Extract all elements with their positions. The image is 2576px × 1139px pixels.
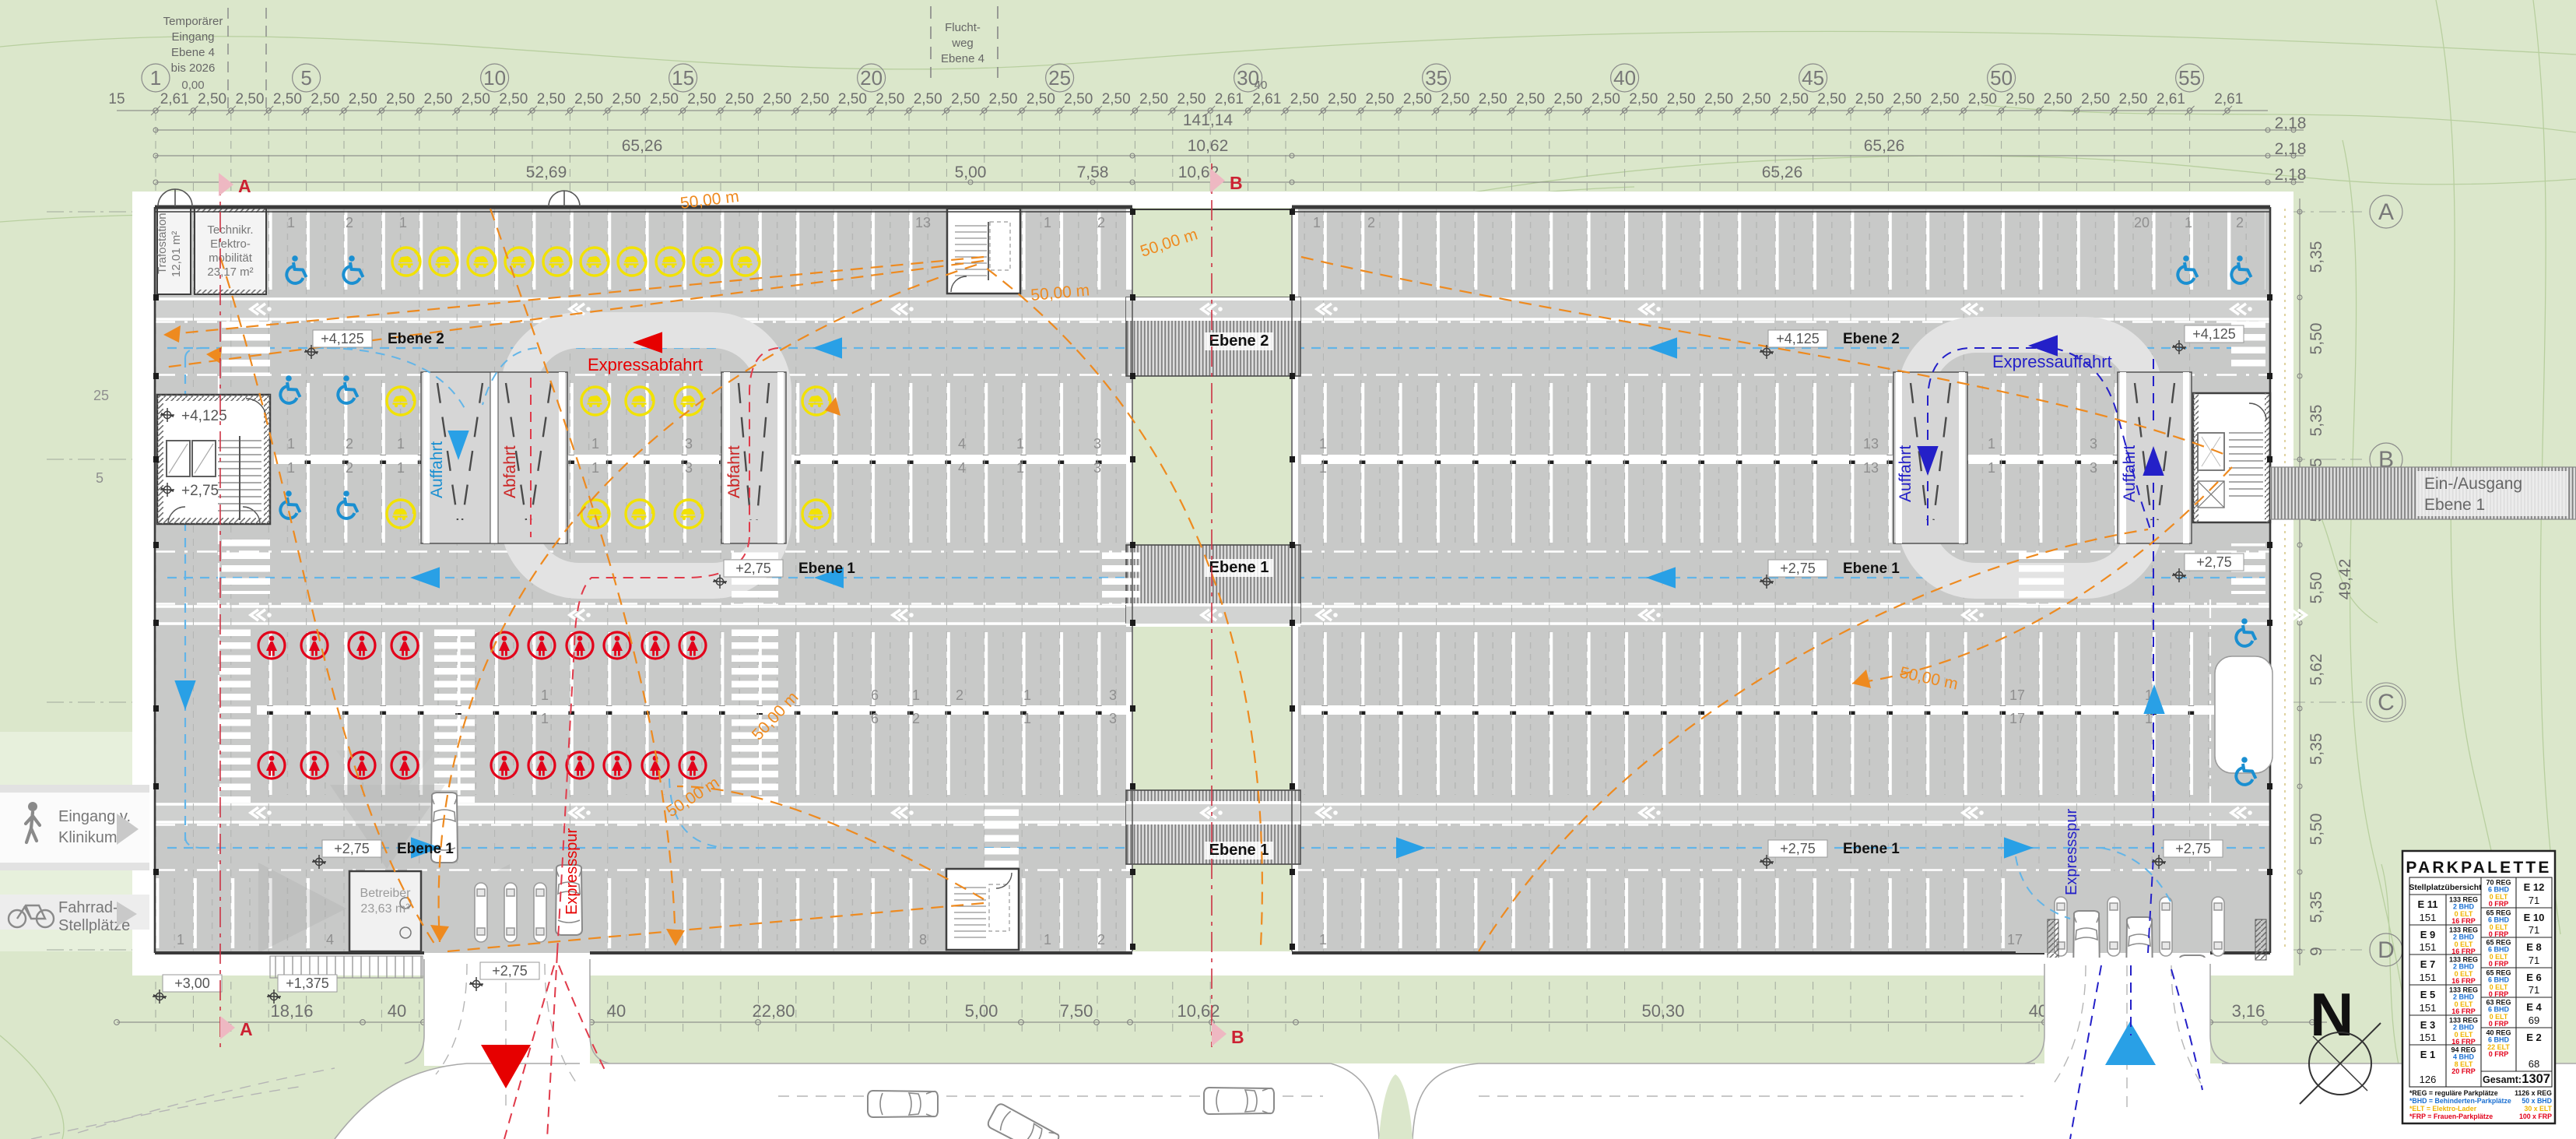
svg-text:bis 2026: bis 2026 bbox=[171, 62, 216, 75]
svg-text:2,61: 2,61 bbox=[2214, 91, 2243, 107]
svg-text:65,26: 65,26 bbox=[1864, 137, 1905, 155]
svg-text:+2,75: +2,75 bbox=[492, 963, 528, 979]
svg-text:17: 17 bbox=[2007, 932, 2023, 947]
svg-text:Ebene 1: Ebene 1 bbox=[1843, 561, 1900, 577]
svg-text:2,50: 2,50 bbox=[725, 91, 754, 107]
svg-text:mobilität: mobilität bbox=[209, 251, 253, 265]
svg-text:5,35: 5,35 bbox=[2308, 733, 2325, 765]
svg-text:+2,75: +2,75 bbox=[1780, 841, 1816, 856]
svg-text:2,18: 2,18 bbox=[2275, 166, 2307, 184]
svg-text:3: 3 bbox=[1109, 687, 1117, 703]
svg-text:20: 20 bbox=[860, 66, 883, 90]
svg-text:1: 1 bbox=[541, 711, 549, 726]
svg-text:Elektro-: Elektro- bbox=[210, 237, 251, 251]
svg-text:D: D bbox=[2378, 937, 2395, 963]
svg-text:2,61: 2,61 bbox=[2157, 91, 2185, 107]
svg-text:2,50: 2,50 bbox=[1855, 91, 1884, 107]
svg-text:2,50: 2,50 bbox=[1064, 91, 1093, 107]
svg-text:45: 45 bbox=[1802, 66, 1824, 90]
svg-text:2,50: 2,50 bbox=[1479, 91, 1507, 107]
svg-text:B: B bbox=[1231, 1027, 1244, 1047]
svg-text:151: 151 bbox=[2420, 941, 2437, 953]
svg-text:2,50: 2,50 bbox=[838, 91, 867, 107]
svg-text:3: 3 bbox=[2090, 436, 2097, 452]
svg-text:+2,75: +2,75 bbox=[1780, 561, 1816, 576]
svg-text:2,50: 2,50 bbox=[1667, 91, 1696, 107]
svg-text:4: 4 bbox=[958, 460, 966, 476]
svg-text:2,50: 2,50 bbox=[386, 91, 415, 107]
svg-text:*BHD = Behinderten-Parkplätze: *BHD = Behinderten-Parkplätze bbox=[2409, 1097, 2511, 1105]
svg-text:Ebene 2: Ebene 2 bbox=[1209, 332, 1269, 350]
svg-text:71: 71 bbox=[2529, 954, 2539, 966]
svg-text:2: 2 bbox=[1367, 215, 1375, 230]
svg-text:5: 5 bbox=[96, 470, 104, 486]
svg-text:71: 71 bbox=[2529, 895, 2539, 906]
svg-text:2,50: 2,50 bbox=[424, 91, 453, 107]
svg-text:Ebene 2: Ebene 2 bbox=[1843, 331, 1900, 347]
svg-text:+3,00: +3,00 bbox=[174, 976, 210, 991]
svg-text:E 1: E 1 bbox=[2420, 1049, 2436, 1060]
svg-text:1: 1 bbox=[1016, 460, 1024, 476]
svg-text:Ebene 2: Ebene 2 bbox=[388, 331, 444, 347]
svg-text:5,35: 5,35 bbox=[2308, 241, 2325, 273]
svg-text:2,50: 2,50 bbox=[1817, 91, 1846, 107]
svg-text:2,50: 2,50 bbox=[1328, 91, 1356, 107]
svg-text:Ein-/Ausgang: Ein-/Ausgang bbox=[2424, 475, 2522, 493]
svg-text:1: 1 bbox=[2185, 215, 2192, 230]
svg-text:2,50: 2,50 bbox=[198, 91, 226, 107]
svg-text:+4,125: +4,125 bbox=[1776, 331, 1820, 346]
svg-text:2,61: 2,61 bbox=[160, 91, 189, 107]
svg-text:2: 2 bbox=[1097, 932, 1105, 947]
svg-text:*FRP = Frauen-Parkplätze: *FRP = Frauen-Parkplätze bbox=[2409, 1113, 2493, 1120]
svg-text:Expressspur: Expressspur bbox=[563, 828, 581, 915]
svg-text:7,50: 7,50 bbox=[1060, 1001, 1093, 1021]
svg-text:*ELT = Elektro-Lader: *ELT = Elektro-Lader bbox=[2409, 1105, 2477, 1113]
svg-text:Ebene 1: Ebene 1 bbox=[2424, 496, 2485, 514]
svg-text:2,50: 2,50 bbox=[1893, 91, 1921, 107]
svg-text:1: 1 bbox=[1319, 436, 1327, 452]
svg-text:2: 2 bbox=[346, 215, 353, 230]
svg-text:Trafostation: Trafostation bbox=[156, 213, 169, 274]
svg-text:weg: weg bbox=[951, 37, 974, 50]
svg-text:16 FRP: 16 FRP bbox=[2451, 917, 2476, 925]
svg-text:5,00: 5,00 bbox=[955, 163, 987, 181]
svg-text:40: 40 bbox=[607, 1001, 626, 1021]
svg-text:+4,125: +4,125 bbox=[2192, 326, 2236, 342]
svg-text:1: 1 bbox=[1988, 436, 1995, 452]
svg-text:2: 2 bbox=[956, 687, 963, 703]
svg-text:Temporärer: Temporärer bbox=[163, 15, 223, 28]
svg-text:23,17 m²: 23,17 m² bbox=[207, 265, 253, 279]
svg-text:Ebene 1: Ebene 1 bbox=[1843, 841, 1900, 857]
svg-text:10,62: 10,62 bbox=[1188, 137, 1229, 155]
svg-text:1: 1 bbox=[1319, 932, 1327, 947]
svg-text:A: A bbox=[2378, 199, 2394, 225]
svg-text:2,50: 2,50 bbox=[801, 91, 830, 107]
svg-text:3: 3 bbox=[2090, 460, 2097, 476]
svg-text:Auffahrt: Auffahrt bbox=[428, 441, 446, 498]
svg-text:1: 1 bbox=[591, 460, 599, 476]
svg-text:1: 1 bbox=[1313, 215, 1321, 230]
svg-text:0 FRP: 0 FRP bbox=[2489, 900, 2509, 908]
svg-text:+2,75: +2,75 bbox=[181, 483, 219, 499]
svg-text:1126 x REG: 1126 x REG bbox=[2515, 1089, 2552, 1097]
svg-text:5,62: 5,62 bbox=[2308, 654, 2325, 686]
svg-text:69: 69 bbox=[2529, 1014, 2539, 1026]
svg-text:8: 8 bbox=[919, 932, 927, 947]
svg-text:2: 2 bbox=[346, 436, 353, 452]
svg-text:5,50: 5,50 bbox=[2308, 323, 2325, 355]
svg-text:141,14: 141,14 bbox=[1183, 111, 1234, 129]
svg-text:E 5: E 5 bbox=[2420, 989, 2436, 1000]
svg-text:5,50: 5,50 bbox=[2308, 814, 2325, 845]
svg-text:1: 1 bbox=[1044, 215, 1051, 230]
svg-text:E 9: E 9 bbox=[2420, 929, 2436, 940]
svg-text:1: 1 bbox=[397, 436, 405, 452]
svg-text:Eingang: Eingang bbox=[171, 30, 214, 44]
svg-text:1: 1 bbox=[150, 66, 161, 90]
svg-text:2,50: 2,50 bbox=[537, 91, 566, 107]
svg-text:6: 6 bbox=[871, 687, 879, 703]
svg-text:0 FRP: 0 FRP bbox=[2489, 990, 2509, 998]
svg-text:1: 1 bbox=[287, 436, 295, 452]
svg-text:15: 15 bbox=[108, 91, 125, 107]
svg-text:35: 35 bbox=[1425, 66, 1448, 90]
svg-text:10,62: 10,62 bbox=[1177, 1001, 1220, 1021]
svg-text:2,50: 2,50 bbox=[2119, 91, 2148, 107]
svg-text:E 8: E 8 bbox=[2526, 941, 2542, 953]
svg-text:2,50: 2,50 bbox=[650, 91, 679, 107]
svg-text:1: 1 bbox=[397, 460, 405, 476]
svg-text:+4,125: +4,125 bbox=[321, 331, 364, 346]
svg-text:25: 25 bbox=[93, 388, 109, 403]
svg-text:2,50: 2,50 bbox=[2081, 91, 2110, 107]
svg-text:Technikr.: Technikr. bbox=[207, 223, 253, 237]
svg-text:E 6: E 6 bbox=[2526, 972, 2542, 983]
svg-text:50 x BHD: 50 x BHD bbox=[2522, 1097, 2552, 1105]
svg-text:151: 151 bbox=[2420, 972, 2437, 983]
svg-text:Ebene 1: Ebene 1 bbox=[1209, 559, 1269, 576]
svg-text:E 3: E 3 bbox=[2420, 1019, 2436, 1031]
svg-text:2,61: 2,61 bbox=[1215, 91, 1244, 107]
svg-text:Stellplatzübersicht: Stellplatzübersicht bbox=[2409, 883, 2482, 892]
svg-text:2,50: 2,50 bbox=[1290, 91, 1319, 107]
svg-text:5,00: 5,00 bbox=[965, 1001, 998, 1021]
svg-text:151: 151 bbox=[2420, 1002, 2437, 1014]
svg-text:2: 2 bbox=[912, 711, 920, 726]
svg-text:25: 25 bbox=[1048, 66, 1071, 90]
svg-text:2,50: 2,50 bbox=[1441, 91, 1469, 107]
svg-text:Expressabfahrt: Expressabfahrt bbox=[588, 355, 703, 374]
svg-text:13: 13 bbox=[1863, 460, 1879, 476]
svg-text:0 FRP: 0 FRP bbox=[2489, 960, 2509, 968]
svg-text:5,35: 5,35 bbox=[2308, 891, 2325, 923]
svg-text:20 FRP: 20 FRP bbox=[2451, 1067, 2476, 1075]
svg-text:2,50: 2,50 bbox=[1742, 91, 1771, 107]
svg-text:Abfahrt: Abfahrt bbox=[501, 445, 519, 498]
svg-text:1: 1 bbox=[287, 215, 295, 230]
svg-text:E 11: E 11 bbox=[2417, 898, 2437, 910]
svg-text:0 FRP: 0 FRP bbox=[2489, 1050, 2509, 1058]
svg-text:2: 2 bbox=[2236, 215, 2244, 230]
svg-text:1307: 1307 bbox=[2522, 1072, 2550, 1086]
svg-text:2,50: 2,50 bbox=[1968, 91, 1997, 107]
svg-text:1: 1 bbox=[591, 436, 599, 452]
svg-text:+2,75: +2,75 bbox=[334, 841, 370, 856]
svg-text:2,50: 2,50 bbox=[1554, 91, 1583, 107]
svg-text:2,50: 2,50 bbox=[349, 91, 377, 107]
svg-text:Abfahrt: Abfahrt bbox=[725, 445, 743, 498]
svg-text:4: 4 bbox=[326, 932, 334, 947]
svg-text:16 FRP: 16 FRP bbox=[2451, 1038, 2476, 1046]
svg-text:2,50: 2,50 bbox=[1177, 91, 1206, 107]
svg-text:2,18: 2,18 bbox=[2275, 114, 2307, 132]
svg-text:2,50: 2,50 bbox=[2044, 91, 2072, 107]
svg-text:2: 2 bbox=[1097, 215, 1105, 230]
svg-text:5,50: 5,50 bbox=[2308, 572, 2325, 604]
svg-text:Auffahrt: Auffahrt bbox=[1897, 445, 1914, 502]
svg-text:3: 3 bbox=[1093, 460, 1101, 476]
svg-text:55: 55 bbox=[2178, 66, 2201, 90]
svg-text:1: 1 bbox=[1044, 932, 1051, 947]
svg-text:+2,75: +2,75 bbox=[735, 561, 771, 576]
svg-text:E 4: E 4 bbox=[2526, 1001, 2542, 1013]
svg-text:15: 15 bbox=[672, 66, 694, 90]
svg-text:+1,375: +1,375 bbox=[286, 976, 329, 991]
svg-text:2,50: 2,50 bbox=[1102, 91, 1131, 107]
svg-text:1: 1 bbox=[912, 687, 920, 703]
svg-text:0,00: 0,00 bbox=[181, 79, 204, 92]
svg-text:50,30: 50,30 bbox=[1641, 1001, 1684, 1021]
svg-text:6: 6 bbox=[871, 711, 879, 726]
svg-text:126: 126 bbox=[2420, 1074, 2437, 1085]
svg-text:*REG = reguläre Parkplätze: *REG = reguläre Parkplätze bbox=[2409, 1089, 2498, 1097]
svg-text:3: 3 bbox=[1093, 436, 1101, 452]
svg-text:16 FRP: 16 FRP bbox=[2451, 1007, 2476, 1015]
svg-text:B: B bbox=[1230, 173, 1243, 193]
svg-text:A: A bbox=[240, 1019, 253, 1039]
svg-text:3: 3 bbox=[685, 460, 693, 476]
svg-text:1: 1 bbox=[287, 460, 295, 476]
svg-text:N: N bbox=[2310, 980, 2353, 1049]
svg-text:PARKPALETTE: PARKPALETTE bbox=[2406, 859, 2551, 877]
svg-text:Fahrrad-: Fahrrad- bbox=[58, 899, 118, 916]
svg-text:0 FRP: 0 FRP bbox=[2489, 1020, 2509, 1028]
svg-text:0 FRP: 0 FRP bbox=[2489, 930, 2509, 938]
svg-text:2,50: 2,50 bbox=[2006, 91, 2034, 107]
svg-text:Klinikum: Klinikum bbox=[58, 829, 118, 846]
svg-text:16 FRP: 16 FRP bbox=[2451, 947, 2476, 955]
svg-text:65,26: 65,26 bbox=[622, 137, 663, 155]
svg-text:2,50: 2,50 bbox=[1704, 91, 1733, 107]
svg-text:+2,75: +2,75 bbox=[2175, 841, 2211, 856]
svg-text:100 x FRP: 100 x FRP bbox=[2519, 1113, 2552, 1120]
svg-text:52,69: 52,69 bbox=[526, 163, 567, 181]
svg-text:17: 17 bbox=[2009, 711, 2025, 726]
svg-text:Ebene 4: Ebene 4 bbox=[941, 52, 984, 65]
svg-text:2,50: 2,50 bbox=[1139, 91, 1168, 107]
svg-text:2,61: 2,61 bbox=[1252, 91, 1281, 107]
svg-text:2,50: 2,50 bbox=[1027, 91, 1055, 107]
svg-text:2,50: 2,50 bbox=[1629, 91, 1658, 107]
svg-text:18,16: 18,16 bbox=[270, 1001, 313, 1021]
svg-text:2,50: 2,50 bbox=[612, 91, 641, 107]
svg-text:2,50: 2,50 bbox=[499, 91, 528, 107]
svg-text:71: 71 bbox=[2529, 924, 2539, 936]
svg-text:A: A bbox=[238, 176, 251, 196]
svg-text:Expressspur: Expressspur bbox=[2063, 809, 2080, 895]
svg-text:2,50: 2,50 bbox=[462, 91, 490, 107]
svg-text:20: 20 bbox=[2134, 215, 2150, 230]
svg-text:2,50: 2,50 bbox=[1516, 91, 1545, 107]
svg-text:49,42: 49,42 bbox=[2336, 559, 2354, 600]
svg-text:4: 4 bbox=[958, 436, 966, 452]
svg-text:2,50: 2,50 bbox=[876, 91, 904, 107]
svg-text:16 FRP: 16 FRP bbox=[2451, 977, 2476, 985]
svg-text:30 x ELT: 30 x ELT bbox=[2524, 1105, 2552, 1113]
svg-text:7,58: 7,58 bbox=[1077, 163, 1109, 181]
svg-text:68: 68 bbox=[2529, 1058, 2539, 1070]
svg-text:2,50: 2,50 bbox=[914, 91, 942, 107]
svg-text:Expressauffahrt: Expressauffahrt bbox=[1992, 352, 2112, 371]
svg-text:2,50: 2,50 bbox=[311, 91, 339, 107]
svg-text:65,26: 65,26 bbox=[1762, 163, 1803, 181]
svg-text:2,18: 2,18 bbox=[2275, 140, 2307, 158]
svg-text:E 2: E 2 bbox=[2526, 1032, 2542, 1043]
svg-text:1: 1 bbox=[1319, 460, 1327, 476]
svg-text:Ebene 1: Ebene 1 bbox=[397, 841, 454, 857]
svg-text:30: 30 bbox=[1237, 66, 1259, 90]
svg-text:2,50: 2,50 bbox=[989, 91, 1018, 107]
svg-text:3: 3 bbox=[1109, 711, 1117, 726]
svg-text:2,50: 2,50 bbox=[1592, 91, 1620, 107]
svg-text:1: 1 bbox=[177, 932, 184, 947]
svg-text:1: 1 bbox=[399, 215, 407, 230]
svg-text:5,35: 5,35 bbox=[2308, 405, 2325, 437]
svg-text:10: 10 bbox=[483, 66, 506, 90]
svg-text:Flucht-: Flucht- bbox=[945, 21, 981, 34]
svg-text:E 10: E 10 bbox=[2524, 912, 2545, 923]
svg-text:2: 2 bbox=[346, 460, 353, 476]
svg-text:Ebene 4: Ebene 4 bbox=[171, 46, 215, 59]
svg-text:2,50: 2,50 bbox=[1780, 91, 1809, 107]
svg-text:151: 151 bbox=[2420, 1032, 2437, 1043]
svg-text:12,01 m²: 12,01 m² bbox=[170, 231, 183, 277]
svg-text:5: 5 bbox=[300, 66, 311, 90]
svg-text:71: 71 bbox=[2529, 984, 2539, 996]
svg-text:1: 1 bbox=[1016, 436, 1024, 452]
svg-text:+2,75: +2,75 bbox=[2196, 554, 2232, 570]
svg-text:Ebene 1: Ebene 1 bbox=[798, 561, 855, 577]
svg-text:1: 1 bbox=[1023, 687, 1031, 703]
svg-text:1: 1 bbox=[1023, 711, 1031, 726]
svg-text:151: 151 bbox=[2420, 912, 2437, 923]
svg-text:13: 13 bbox=[915, 215, 931, 230]
svg-text:40: 40 bbox=[388, 1001, 406, 1021]
svg-text:3,16: 3,16 bbox=[2232, 1001, 2265, 1021]
svg-text:22,80: 22,80 bbox=[752, 1001, 795, 1021]
svg-text:1: 1 bbox=[541, 687, 549, 703]
svg-text:2,50: 2,50 bbox=[273, 91, 302, 107]
svg-text:2,50: 2,50 bbox=[1403, 91, 1432, 107]
svg-text:3: 3 bbox=[685, 436, 693, 452]
svg-text:40: 40 bbox=[1613, 66, 1636, 90]
svg-text:2,50: 2,50 bbox=[1931, 91, 1960, 107]
svg-text:17: 17 bbox=[2009, 687, 2025, 703]
svg-text:E 7: E 7 bbox=[2420, 958, 2436, 970]
svg-text:2,50: 2,50 bbox=[763, 91, 791, 107]
svg-text:2,50: 2,50 bbox=[1366, 91, 1395, 107]
svg-text:Ebene 1: Ebene 1 bbox=[1209, 842, 1269, 859]
svg-text:9: 9 bbox=[2308, 947, 2325, 956]
svg-text:E 12: E 12 bbox=[2524, 881, 2545, 893]
svg-text:2,50: 2,50 bbox=[236, 91, 265, 107]
svg-text:2,50: 2,50 bbox=[574, 91, 603, 107]
svg-text:Gesamt:: Gesamt: bbox=[2483, 1074, 2522, 1085]
svg-text:C: C bbox=[2378, 690, 2395, 715]
svg-text:13: 13 bbox=[1863, 436, 1879, 452]
svg-text:2,50: 2,50 bbox=[687, 91, 716, 107]
svg-text:1: 1 bbox=[1988, 460, 1995, 476]
svg-text:2,50: 2,50 bbox=[951, 91, 980, 107]
svg-text:50: 50 bbox=[1990, 66, 2013, 90]
svg-text:Auffahrt: Auffahrt bbox=[2121, 445, 2139, 502]
svg-text:23,63 m²: 23,63 m² bbox=[360, 902, 410, 916]
